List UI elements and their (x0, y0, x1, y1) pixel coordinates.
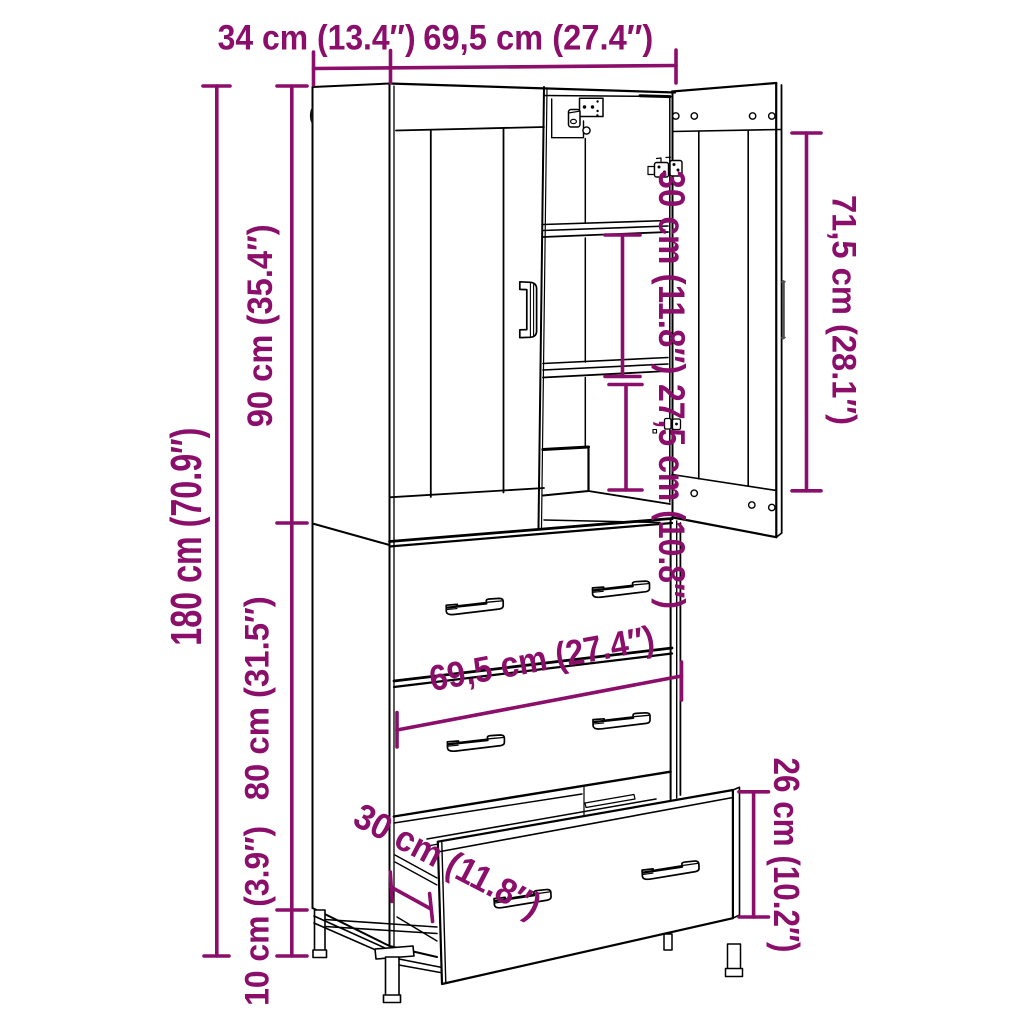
svg-text:27,5 cm (10.8″): 27,5 cm (10.8″) (651, 384, 692, 609)
svg-text:71,5 cm (28.1″): 71,5 cm (28.1″) (825, 195, 863, 425)
svg-text:26 cm (10.2″): 26 cm (10.2″) (766, 758, 807, 953)
svg-text:69,5 cm (27.4″): 69,5 cm (27.4″) (423, 19, 653, 58)
svg-text:30 cm (11.8″): 30 cm (11.8″) (651, 170, 692, 374)
svg-text:90 cm (35.4″): 90 cm (35.4″) (241, 224, 280, 427)
svg-text:34 cm (13.4″): 34 cm (13.4″) (218, 19, 416, 58)
svg-text:10 cm (3.9″): 10 cm (3.9″) (239, 826, 277, 1006)
svg-text:180 cm (70.9″): 180 cm (70.9″) (162, 428, 211, 646)
svg-text:80 cm (31.5″): 80 cm (31.5″) (239, 596, 277, 800)
